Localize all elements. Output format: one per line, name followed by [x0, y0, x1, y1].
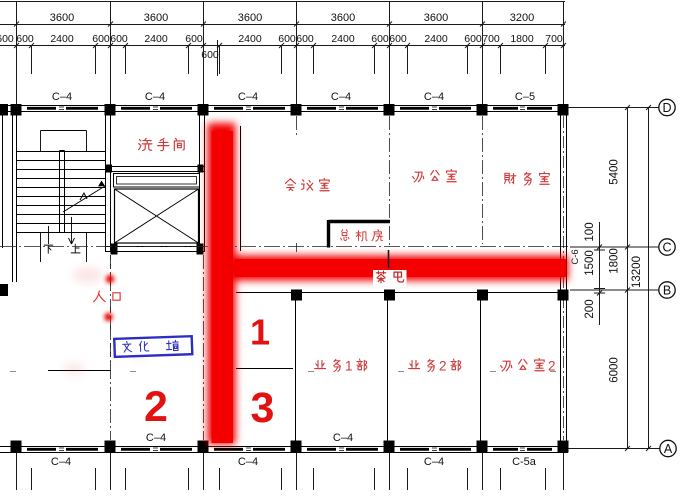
svg-text:2: 2 [144, 383, 168, 431]
svg-text:C–4: C–4 [238, 91, 258, 103]
svg-text:C–4: C–4 [424, 456, 444, 468]
svg-text:700: 700 [545, 33, 563, 45]
svg-text:2400: 2400 [424, 33, 448, 45]
svg-text:C–4: C–4 [145, 91, 165, 103]
svg-text:A: A [664, 442, 673, 456]
svg-text:600: 600 [201, 49, 219, 61]
svg-text:600: 600 [278, 33, 296, 45]
svg-text:2: 2 [439, 359, 447, 374]
svg-text:C–4: C–4 [424, 91, 444, 103]
svg-text:600: 600 [16, 33, 34, 45]
svg-text:2400: 2400 [331, 33, 355, 45]
svg-text:C–4: C–4 [52, 91, 72, 103]
svg-text:3600: 3600 [331, 12, 355, 24]
svg-text:C–4: C–4 [333, 432, 353, 444]
svg-text:200: 200 [584, 299, 596, 318]
svg-text:C–5: C–5 [515, 91, 535, 103]
svg-text:C–4: C–4 [51, 456, 71, 468]
svg-text:C–4: C–4 [331, 91, 351, 103]
svg-text:D: D [662, 101, 671, 115]
svg-text:C–4: C–4 [146, 432, 166, 444]
svg-text:1800: 1800 [510, 33, 534, 45]
svg-text:13200: 13200 [631, 256, 643, 288]
svg-text:1: 1 [250, 312, 270, 353]
svg-text:2400: 2400 [144, 33, 168, 45]
svg-text:600: 600 [296, 33, 314, 45]
svg-text:3600: 3600 [238, 12, 262, 24]
svg-text:5400: 5400 [609, 159, 621, 185]
svg-text:3600: 3600 [424, 12, 448, 24]
svg-text:600: 600 [371, 33, 389, 45]
svg-text:2400: 2400 [50, 33, 74, 45]
svg-text:100: 100 [584, 222, 596, 241]
svg-text:C-5a: C-5a [512, 456, 537, 468]
svg-text:3600: 3600 [50, 12, 74, 24]
svg-text:700: 700 [482, 33, 500, 45]
svg-text:600: 600 [185, 33, 203, 45]
svg-text:C: C [662, 241, 671, 255]
svg-text:600: 600 [110, 33, 128, 45]
svg-text:C–4: C–4 [238, 456, 258, 468]
svg-text:1: 1 [345, 359, 353, 374]
svg-text:600: 600 [92, 33, 110, 45]
svg-text:3: 3 [251, 384, 275, 432]
svg-text:2: 2 [548, 359, 556, 374]
svg-text:1500: 1500 [584, 250, 596, 276]
svg-text:600: 600 [0, 33, 14, 45]
svg-text:C-6: C-6 [570, 249, 581, 264]
svg-text:6000: 6000 [609, 357, 621, 383]
svg-text:2400: 2400 [238, 33, 262, 45]
svg-text:600: 600 [464, 33, 482, 45]
svg-text:1800: 1800 [609, 248, 621, 274]
svg-text:B: B [663, 284, 671, 298]
svg-text:3600: 3600 [144, 12, 168, 24]
svg-text:3200: 3200 [510, 12, 534, 24]
svg-text:600: 600 [389, 33, 407, 45]
